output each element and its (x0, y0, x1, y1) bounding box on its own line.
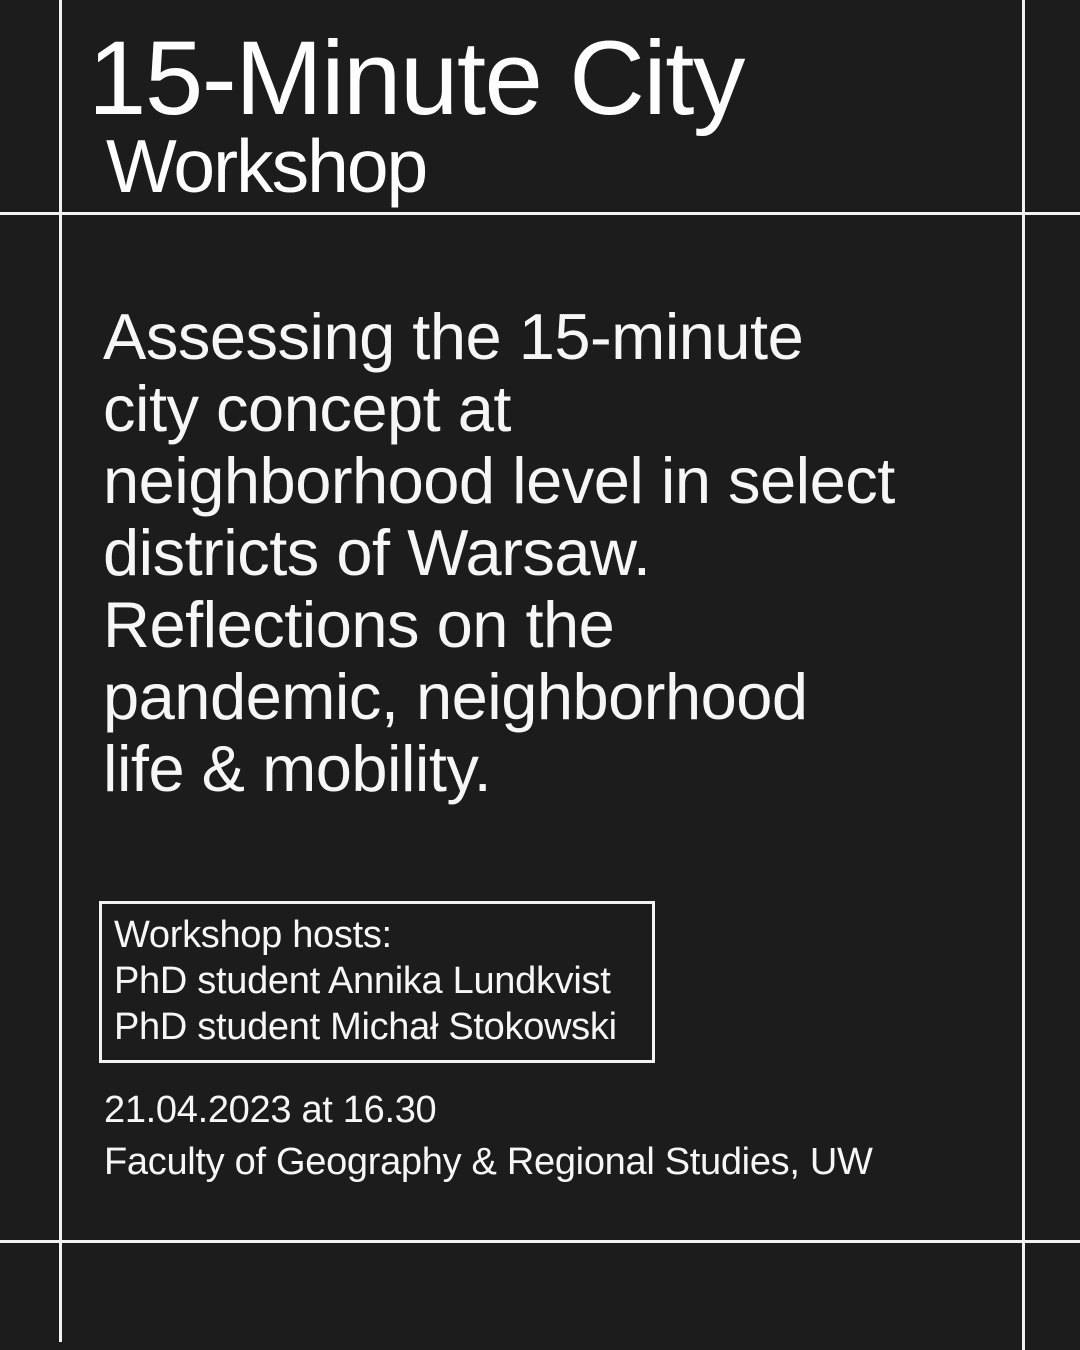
frame-vertical-line-left (59, 0, 62, 1342)
poster-description: Assessing the 15-minute city concept at … (103, 301, 963, 805)
frame-horizontal-line-top (0, 212, 1080, 215)
event-datetime: 21.04.2023 at 16.30 (104, 1084, 873, 1136)
frame-vertical-line-right (1022, 0, 1025, 1350)
host-name: PhD student Michał Stokowski (114, 1004, 640, 1050)
hosts-box: Workshop hosts: PhD student Annika Lundk… (99, 901, 655, 1063)
poster-title: 15-Minute City (88, 26, 744, 131)
host-name: PhD student Annika Lundkvist (114, 958, 640, 1004)
workshop-poster: 15-Minute City Workshop Assessing the 15… (0, 0, 1080, 1350)
poster-subtitle: Workshop (106, 129, 426, 204)
event-location: Faculty of Geography & Regional Studies,… (104, 1136, 873, 1188)
frame-horizontal-line-bottom (0, 1240, 1080, 1243)
event-details: 21.04.2023 at 16.30 Faculty of Geography… (104, 1084, 873, 1188)
hosts-box-heading: Workshop hosts: (114, 912, 640, 958)
